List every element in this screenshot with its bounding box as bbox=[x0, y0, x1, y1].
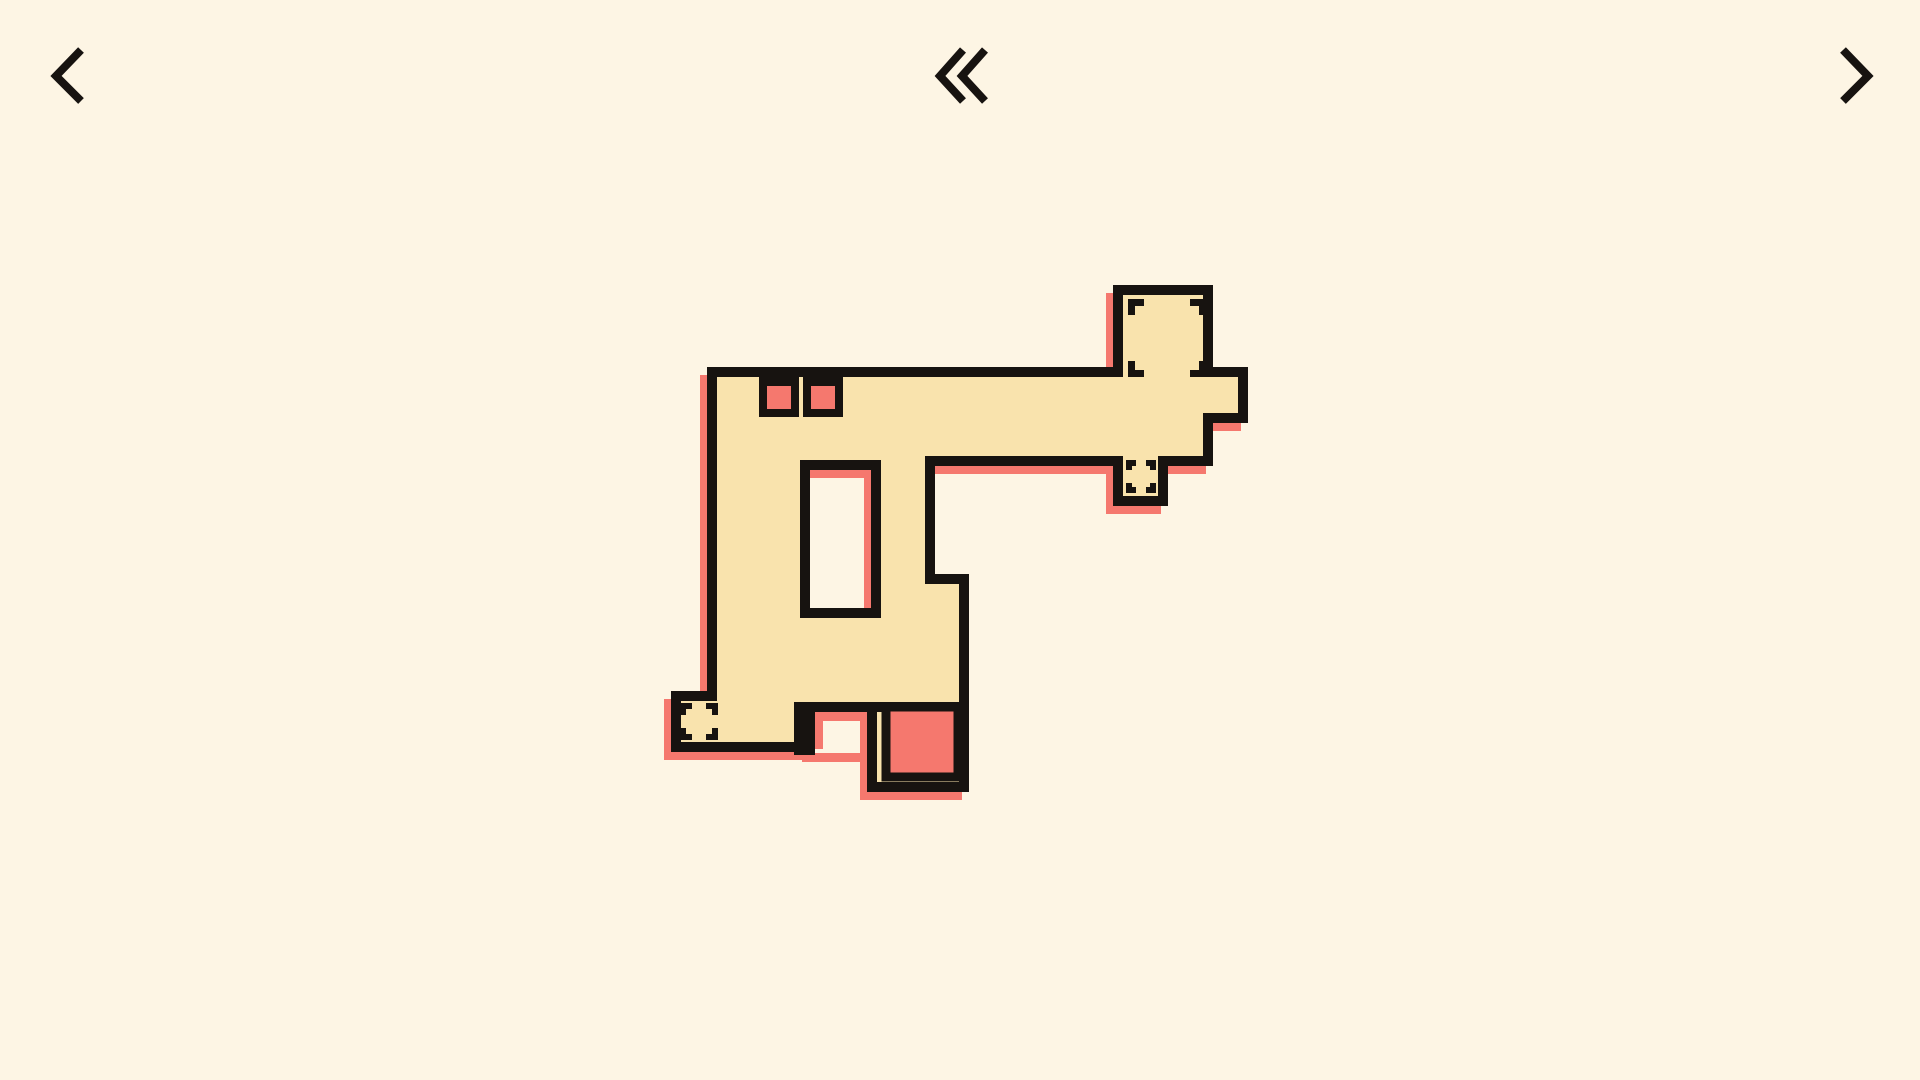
bracket-arm bbox=[680, 728, 686, 740]
double-chevron-left-icon bbox=[962, 50, 985, 101]
interior-edge-2 bbox=[794, 702, 815, 755]
crate-small-1-fill bbox=[767, 386, 791, 409]
bracket-arm bbox=[1150, 483, 1156, 493]
chevron-right-icon bbox=[1843, 50, 1868, 101]
chevron-left-icon bbox=[56, 50, 81, 101]
crate-small-2[interactable] bbox=[803, 370, 843, 417]
bracket-arm bbox=[680, 703, 686, 715]
shadow-sliver-2 bbox=[815, 712, 823, 749]
crate-small-1[interactable] bbox=[759, 370, 799, 417]
bracket-arm bbox=[712, 703, 718, 715]
bracket-arm bbox=[712, 728, 718, 740]
bracket-arm bbox=[1199, 361, 1206, 377]
crate-small-2-fill bbox=[811, 386, 835, 409]
next-level-button[interactable] bbox=[1843, 50, 1868, 101]
bracket-arm bbox=[1128, 361, 1135, 377]
bracket-arm bbox=[1150, 460, 1156, 470]
bracket-arm bbox=[1126, 483, 1132, 493]
back-to-levels-button[interactable] bbox=[940, 50, 985, 101]
previous-level-button[interactable] bbox=[56, 50, 81, 101]
bracket-arm bbox=[1199, 299, 1206, 315]
bracket-arm bbox=[1126, 460, 1132, 470]
crate-large[interactable] bbox=[886, 707, 958, 777]
bracket-arm bbox=[1128, 299, 1135, 315]
game-screen bbox=[0, 0, 1920, 1080]
level-canvas bbox=[0, 0, 1920, 1080]
